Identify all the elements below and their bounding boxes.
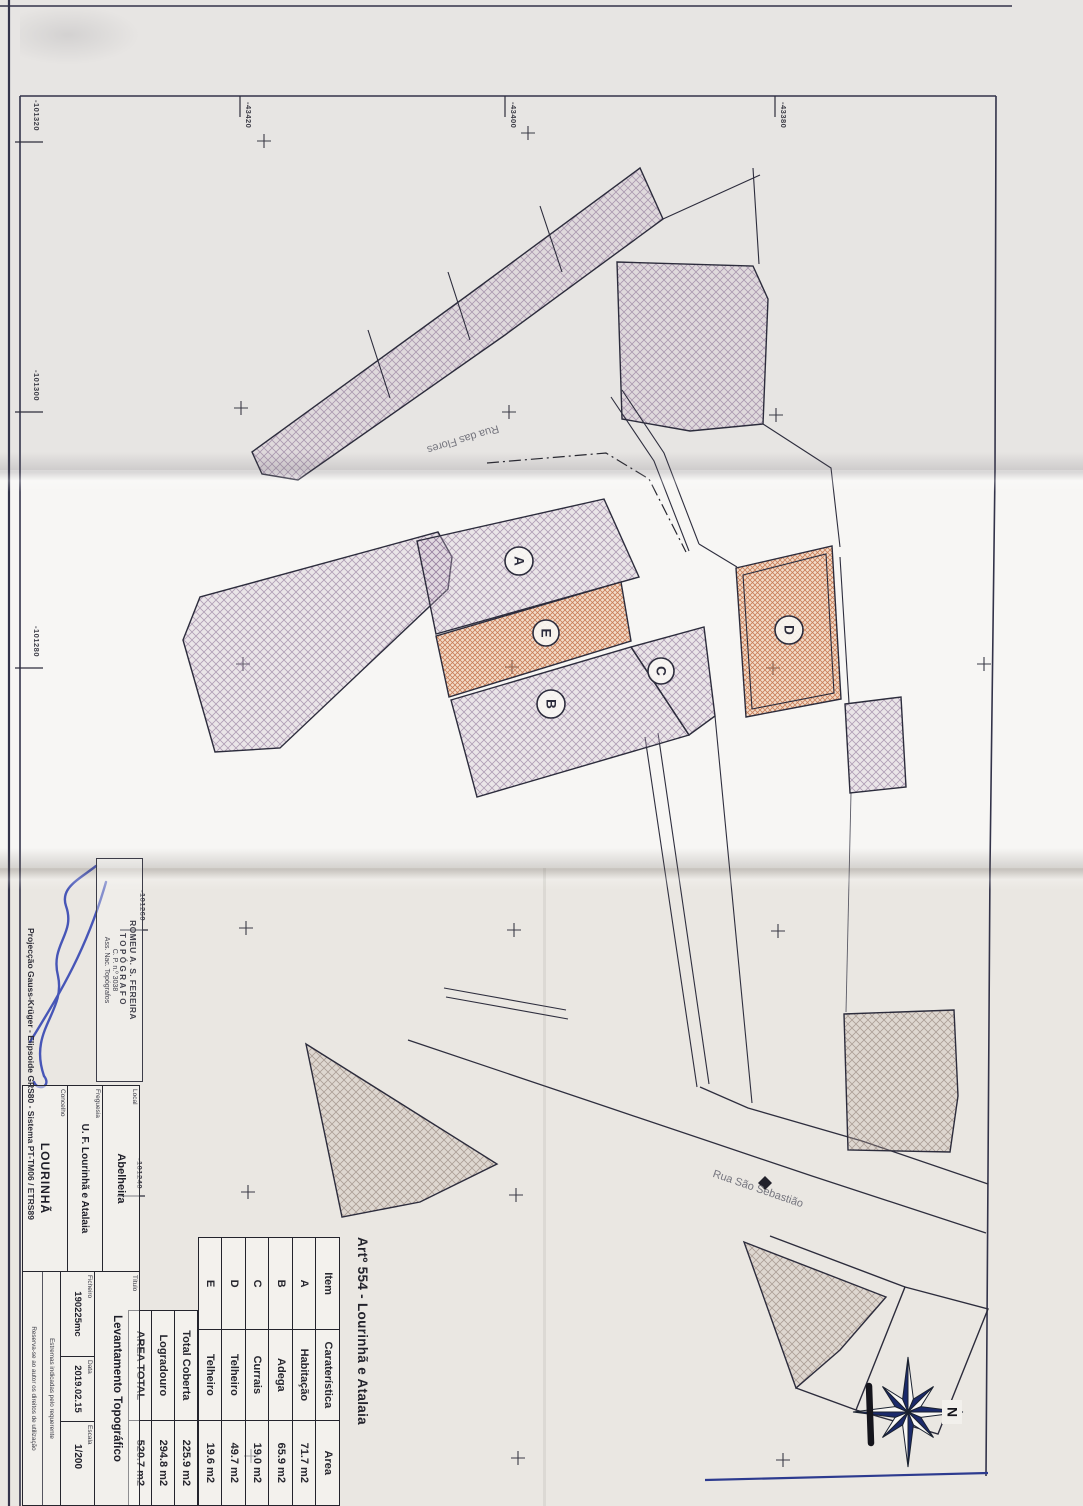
col-header-item: Item <box>316 1238 340 1330</box>
title-block-right: Título Levantamento Topográfico Ficheiro… <box>23 1272 139 1505</box>
plan-drawing: A E B C D Rua das Flores Rua São Sebasti… <box>0 0 1083 1506</box>
north-compass-icon: N <box>853 1357 963 1467</box>
col-header-area: Area <box>316 1420 340 1505</box>
grid-label-top-2: -43400 <box>509 102 518 128</box>
table-row: D Telheiro 49.7 m2 <box>222 1238 246 1506</box>
field-data-value: 2019.02.15 <box>72 1365 83 1413</box>
parcel-label-E: E <box>539 628 554 637</box>
field-local-value: Abelheira <box>115 1153 127 1203</box>
stamp-number: C. P. n.º 3038 <box>110 949 118 992</box>
table-row-total: Logradouro 294.8 m2 <box>152 1311 175 1506</box>
parcel-label-D: D <box>782 625 797 635</box>
field-escala: Escala 1/200 <box>61 1422 94 1491</box>
field-titulo-label: Título <box>131 1275 138 1291</box>
table-row: E Telheiro 19.6 m2 <box>199 1238 223 1506</box>
grid-label-left-1: -101320 <box>32 100 41 131</box>
street-name-rua-das-flores: Rua das Flores <box>425 422 500 455</box>
table-row: C Currais 19.0 m2 <box>246 1238 270 1506</box>
field-ficheiro-label: Ficheiro <box>86 1275 93 1298</box>
street-name-rua-sao-sebastiao: Rua São Sebastião <box>711 1168 805 1210</box>
scanned-survey-sheet: A E B C D Rua das Flores Rua São Sebasti… <box>0 0 1083 1506</box>
parcel-label-B: B <box>544 699 559 709</box>
field-titulo-value: Levantamento Topográfico <box>111 1315 123 1462</box>
parcel-label-C: C <box>654 666 669 676</box>
areas-table-main: Item Caraterística Area A Habitação 71.7… <box>198 1237 340 1506</box>
stamp-association: Ass. Nac. Topógrafos <box>102 937 110 1003</box>
parcel-label-A: A <box>512 556 527 566</box>
field-concelho-label: Concelho <box>59 1089 66 1116</box>
col-header-caracteristica: Caraterística <box>316 1330 340 1420</box>
parcels-south <box>306 1010 988 1434</box>
table-row: A Habitação 71.7 m2 <box>293 1238 317 1506</box>
field-data-label: Data <box>86 1360 93 1374</box>
grid-label-left-2: -101300 <box>32 370 41 401</box>
grid-label-left-3: -101280 <box>32 626 41 657</box>
field-local: Local Abelheira <box>102 1086 139 1271</box>
file-date-scale-row: Ficheiro 190225mc Data 2019.02.15 Escala… <box>60 1272 94 1505</box>
field-escala-label: Escala <box>86 1425 93 1445</box>
field-titulo: Título Levantamento Topográfico <box>94 1272 139 1505</box>
title-block: Local Abelheira Freguesia U. F. Lourinhã… <box>22 1085 140 1506</box>
field-local-label: Local <box>131 1089 138 1105</box>
field-ficheiro: Ficheiro 190225mc <box>61 1272 94 1357</box>
table-header-row: Item Caraterística Area <box>316 1238 340 1506</box>
small-annex <box>845 697 906 793</box>
grid-label-top-3: -43380 <box>779 102 788 128</box>
field-escala-value: 1/200 <box>72 1444 83 1469</box>
existing-buildings-band <box>252 168 768 480</box>
field-data: Data 2019.02.15 <box>61 1357 94 1422</box>
stamp-name: ROMEU A. S. FEREIRA <box>127 920 137 1020</box>
surveyor-stamp: ROMEU A. S. FEREIRA TOPÓGRAFO C. P. n.º … <box>96 858 143 1082</box>
grid-label-top-1: -43420 <box>244 102 253 128</box>
field-ficheiro-value: 190225mc <box>72 1291 83 1336</box>
table-row-total: Total Coberta 225.9 m2 <box>175 1311 198 1506</box>
title-block-left: Local Abelheira Freguesia U. F. Lourinhã… <box>23 1086 139 1272</box>
stamp-title: TOPÓGRAFO <box>118 933 127 1007</box>
neighbor-strip <box>183 532 452 752</box>
table-row: B Adega 65.9 m2 <box>269 1238 293 1506</box>
note-line-1: Estremas indicadas pelo requerente <box>42 1272 60 1505</box>
field-freguesia-label: Freguesia <box>94 1089 101 1118</box>
surveyor-signature <box>30 866 106 1087</box>
parcels <box>183 499 906 797</box>
field-freguesia-value: U. F. Lourinhã e Atalaia <box>80 1124 91 1234</box>
north-label: N <box>945 1407 961 1417</box>
sheet-title: Artº 554 - Lourinhã e Atalaia <box>344 1237 370 1487</box>
projection-note: Projecção Gauss-Krüger - Elipsoide GRS80… <box>23 928 36 1326</box>
field-concelho-value: LOURINHÃ <box>39 1143 53 1214</box>
field-freguesia: Freguesia U. F. Lourinhã e Atalaia <box>67 1086 102 1271</box>
